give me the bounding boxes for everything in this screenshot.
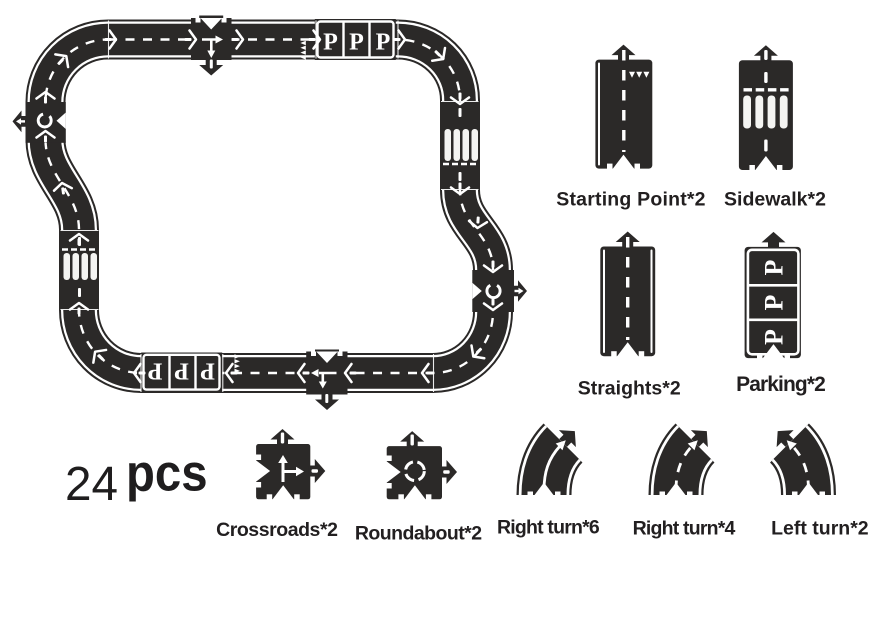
svg-text:Crossroads*2: Crossroads*2 <box>216 519 338 541</box>
svg-text:Right turn*6: Right turn*6 <box>497 517 600 539</box>
svg-text:P: P <box>349 30 364 56</box>
svg-text:Right turn*4: Right turn*4 <box>633 518 736 540</box>
svg-text:P: P <box>376 30 391 56</box>
svg-text:Parking*2: Parking*2 <box>736 373 825 396</box>
svg-text:P: P <box>174 358 189 384</box>
svg-text:Sidewalk*2: Sidewalk*2 <box>724 189 826 211</box>
svg-text:P: P <box>760 329 789 345</box>
svg-text:pcs: pcs <box>126 444 208 503</box>
svg-text:P: P <box>200 358 215 384</box>
svg-text:Roundabout*2: Roundabout*2 <box>355 523 482 545</box>
svg-text:24: 24 <box>65 458 118 511</box>
svg-text:P: P <box>148 358 163 384</box>
svg-text:Starting Point*2: Starting Point*2 <box>556 189 705 211</box>
svg-text:P: P <box>760 260 789 276</box>
svg-text:Straights*2: Straights*2 <box>578 378 681 400</box>
svg-text:P: P <box>323 30 338 56</box>
svg-text:Left turn*2: Left turn*2 <box>771 518 869 540</box>
svg-text:P: P <box>760 295 789 311</box>
